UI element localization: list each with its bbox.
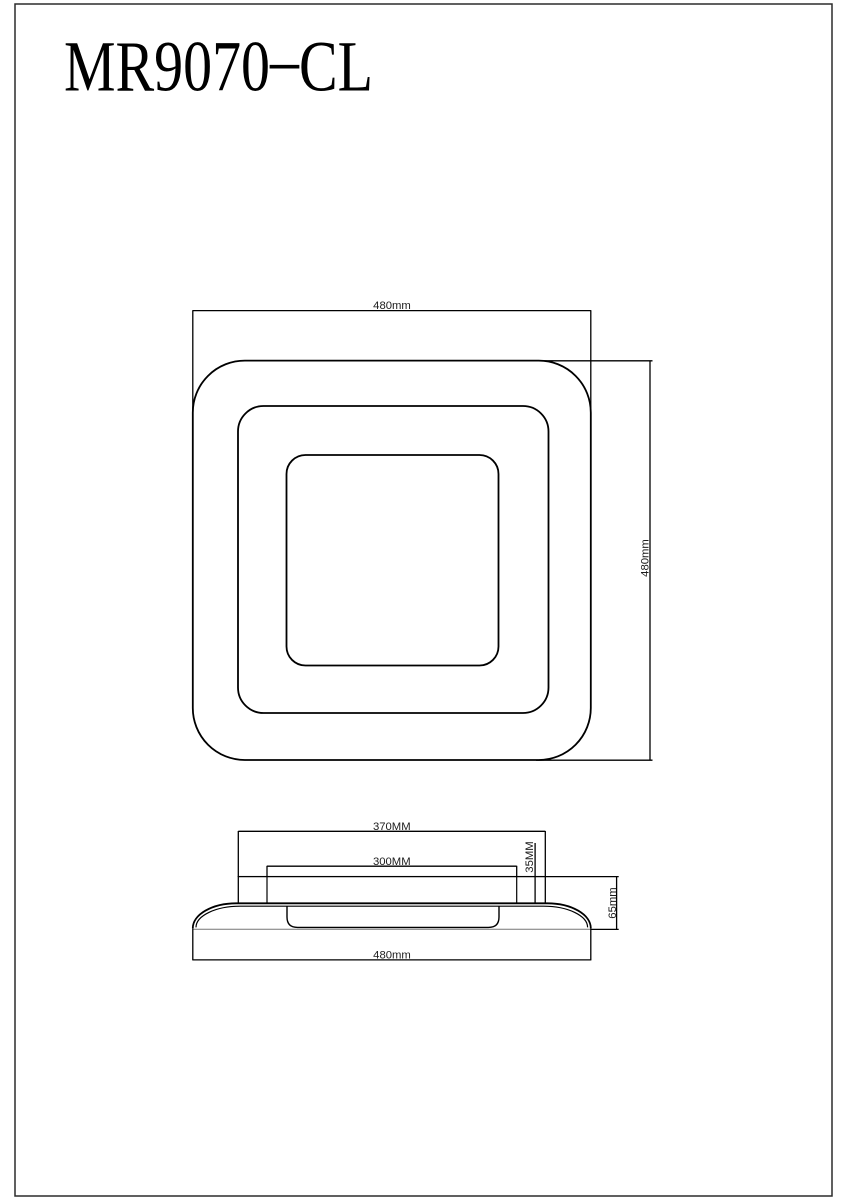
svg-text:480mm: 480mm — [373, 949, 411, 961]
svg-text:35MM: 35MM — [524, 841, 536, 872]
svg-text:300MM: 300MM — [373, 856, 411, 868]
svg-text:370MM: 370MM — [373, 821, 411, 833]
svg-text:MR9070–CL: MR9070–CL — [64, 20, 373, 107]
svg-text:65mm: 65mm — [607, 887, 619, 918]
svg-text:480mm: 480mm — [373, 300, 411, 312]
svg-text:480mm: 480mm — [640, 539, 652, 577]
